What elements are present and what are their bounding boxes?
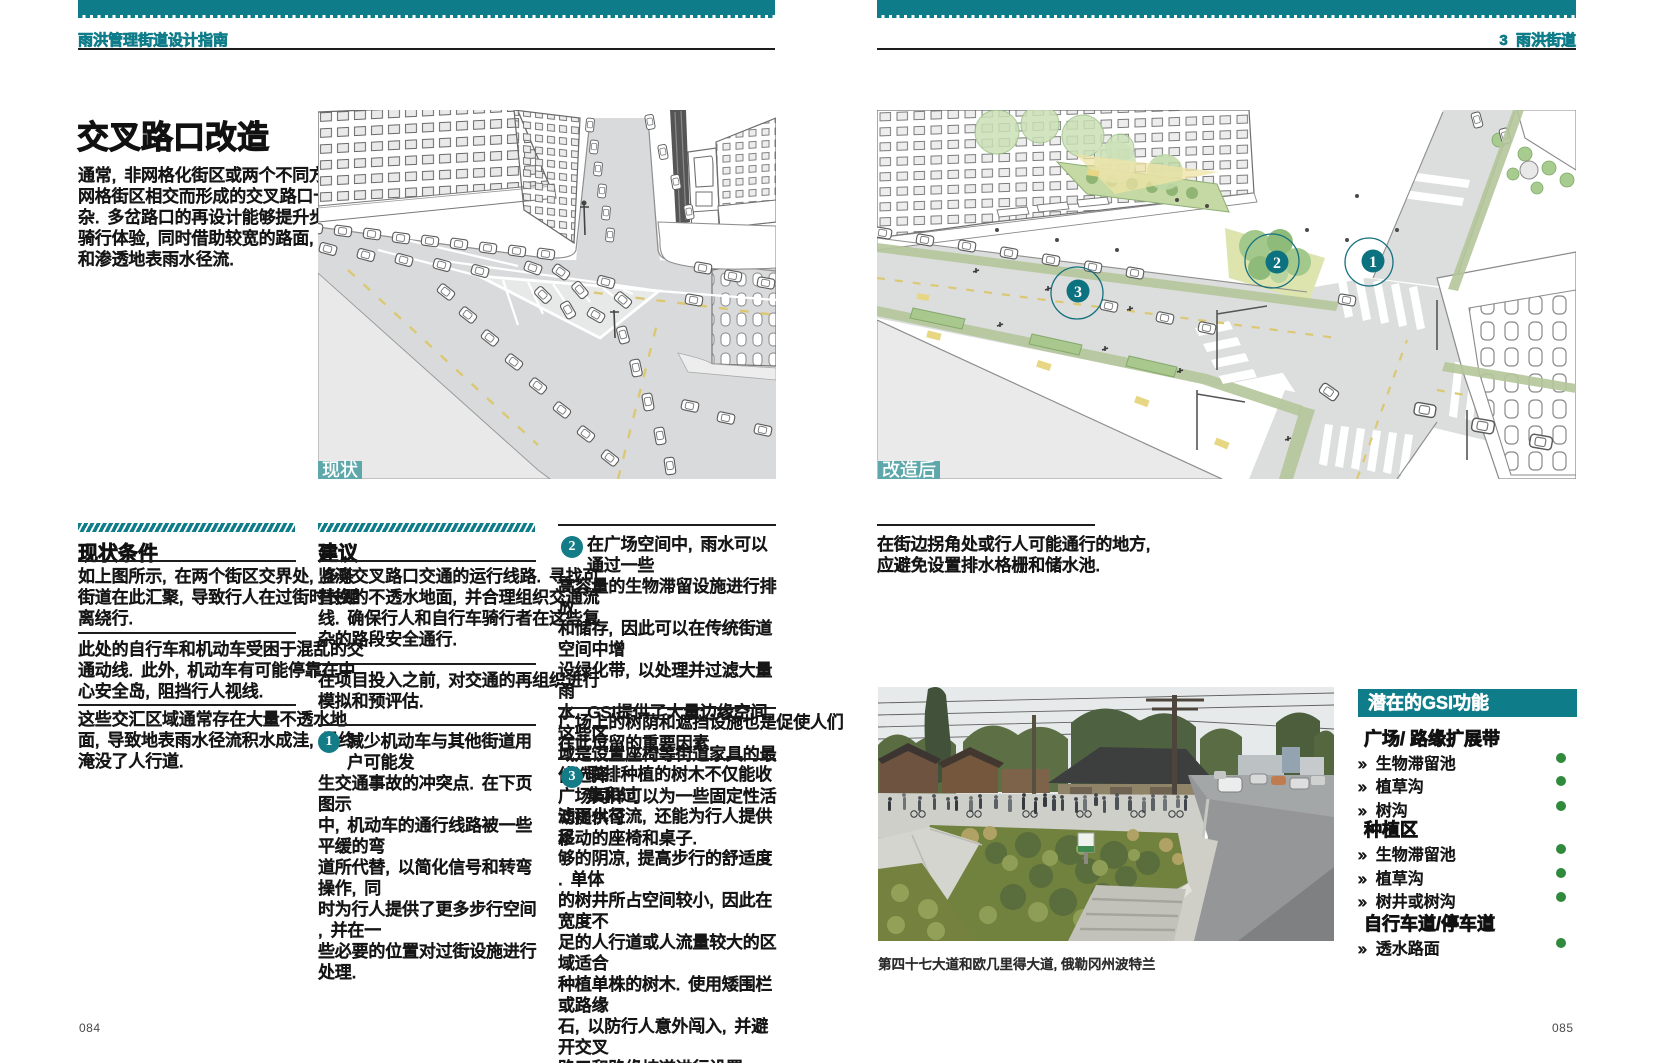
svg-text:2: 2 [1273,255,1281,272]
svg-text:1: 1 [1369,254,1377,271]
svg-text:3: 3 [1074,284,1082,301]
